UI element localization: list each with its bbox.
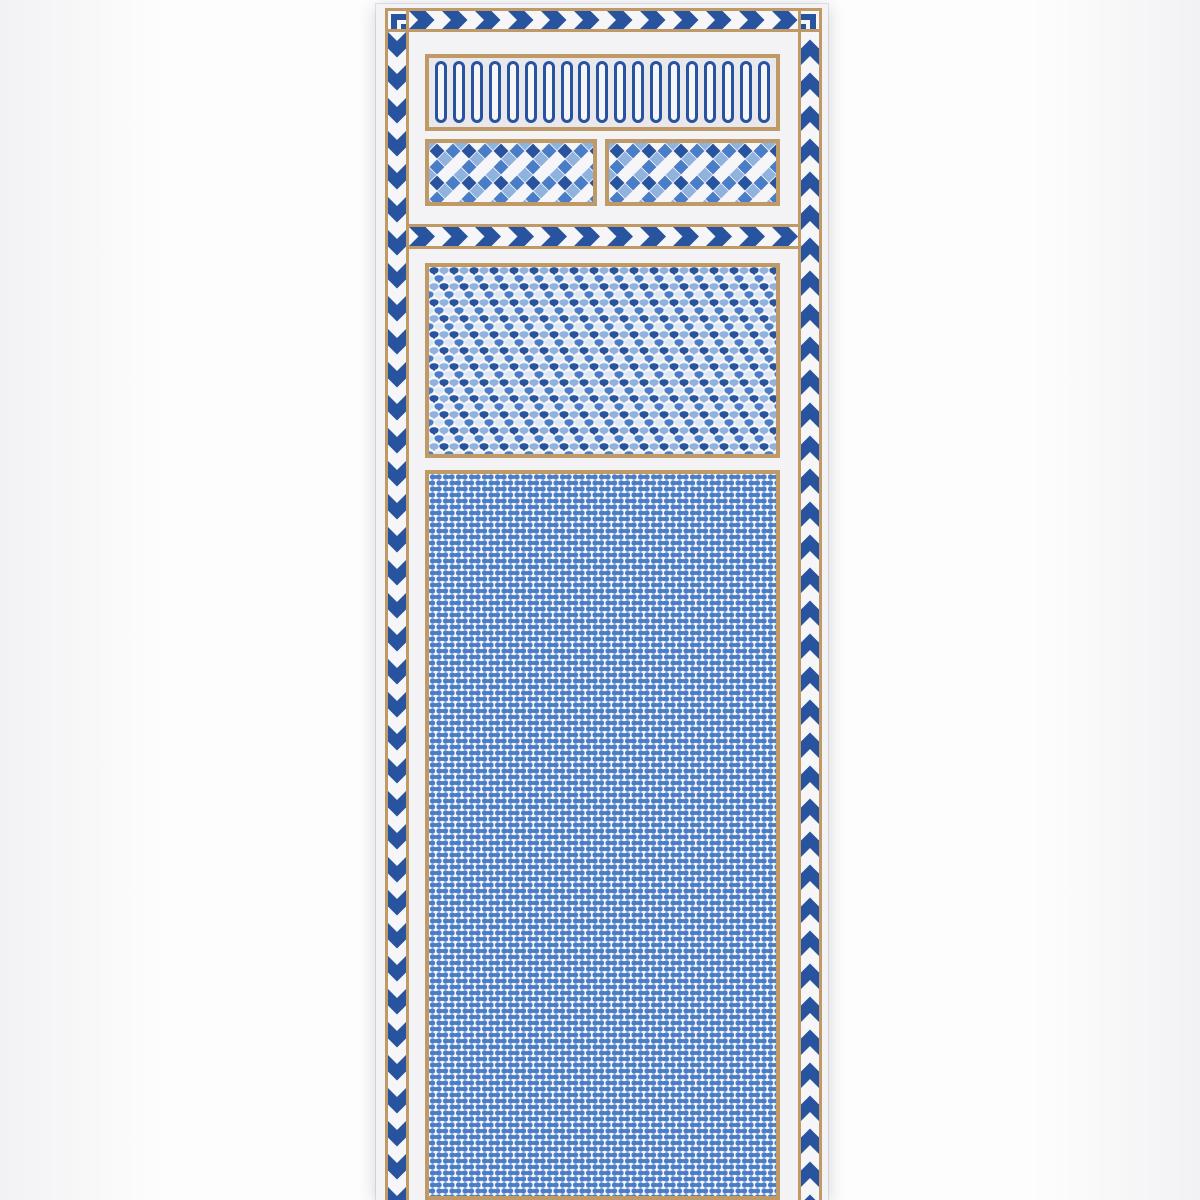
diamond-band-left — [425, 139, 597, 206]
arch-ring — [489, 61, 501, 123]
arch-ring — [704, 61, 716, 123]
diamond-band-right — [605, 139, 780, 206]
arch-ring — [632, 61, 644, 123]
arch-ring — [668, 61, 680, 123]
chevron-divider — [409, 224, 798, 249]
arch-frieze — [425, 54, 780, 131]
photo-canvas — [0, 0, 1200, 1200]
border-chevron-left — [385, 32, 409, 1200]
border-chevron-right — [798, 32, 822, 1200]
arch-ring — [561, 61, 573, 123]
chevron-right-pattern — [409, 227, 798, 246]
arch-ring — [722, 61, 734, 123]
arch-frieze-rings — [429, 58, 776, 127]
arch-ring — [435, 61, 447, 123]
arch-ring — [525, 61, 537, 123]
chevron-down-pattern — [388, 32, 406, 1200]
border-chevron-top — [409, 8, 798, 32]
scallop-fan-pattern — [429, 267, 776, 454]
chevron-up-pattern — [801, 32, 819, 1200]
arch-ring — [758, 61, 770, 123]
arch-ring — [507, 61, 519, 123]
bone-lattice-panel — [425, 470, 780, 1200]
arch-ring — [543, 61, 555, 123]
diamond-checker-pattern — [609, 143, 776, 202]
arch-ring — [740, 61, 752, 123]
chevron-right-pattern — [409, 11, 798, 29]
arch-ring — [578, 61, 590, 123]
diamond-checker-pattern — [429, 143, 593, 202]
arch-ring — [614, 61, 626, 123]
arch-ring — [471, 61, 483, 123]
border-corner-top-right — [798, 8, 822, 32]
arch-ring — [453, 61, 465, 123]
fan-scale-panel — [425, 263, 780, 458]
arch-ring — [596, 61, 608, 123]
bone-lattice-pattern — [429, 474, 776, 1196]
wallpaper-panel — [376, 4, 828, 1200]
border-corner-top-left — [385, 8, 409, 32]
corner-chevron-icon — [801, 11, 819, 29]
arch-ring — [686, 61, 698, 123]
corner-chevron-icon — [388, 11, 406, 29]
arch-ring — [650, 61, 662, 123]
